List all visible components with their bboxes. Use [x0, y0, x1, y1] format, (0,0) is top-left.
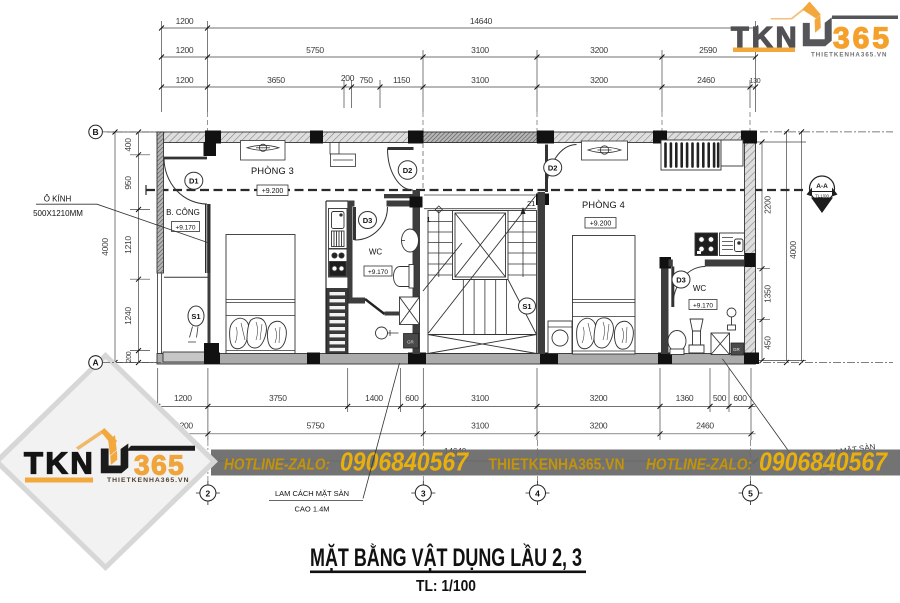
svg-text:D2: D2 [548, 164, 558, 173]
svg-text:GR: GR [733, 347, 741, 352]
svg-text:3: 3 [421, 488, 426, 498]
svg-text:0906840567: 0906840567 [340, 447, 469, 477]
svg-text:+9.200: +9.200 [262, 188, 284, 195]
svg-text:14640: 14640 [470, 16, 493, 26]
svg-text:1200: 1200 [176, 16, 194, 26]
svg-text:3100: 3100 [471, 75, 489, 85]
svg-text:WC: WC [369, 248, 383, 257]
svg-text:Ô KÍNH: Ô KÍNH [44, 195, 72, 204]
svg-text:D1: D1 [189, 177, 199, 186]
svg-text:MẶT BẰNG VẬT DỤNG LẦU 2, 3: MẶT BẰNG VẬT DỤNG LẦU 2, 3 [310, 542, 582, 572]
svg-text:1400: 1400 [365, 393, 383, 403]
svg-text:365: 365 [833, 22, 892, 55]
svg-text:+9.200: +9.200 [590, 221, 612, 228]
svg-text:PHÒNG 3: PHÒNG 3 [251, 166, 294, 177]
svg-text:1200: 1200 [174, 393, 192, 403]
svg-text:THIETKENHA365.VN: THIETKENHA365.VN [811, 52, 888, 59]
svg-text:THIETKENHA365.VN: THIETKENHA365.VN [107, 477, 189, 484]
svg-text:S1: S1 [191, 312, 200, 321]
svg-text:HOTLINE-ZALO:: HOTLINE-ZALO: [224, 457, 330, 474]
svg-text:PHÒNG 4: PHÒNG 4 [582, 200, 625, 211]
svg-text:D3: D3 [363, 216, 373, 225]
svg-text:+9.170: +9.170 [368, 269, 388, 276]
svg-text:200: 200 [126, 351, 133, 362]
svg-text:365: 365 [134, 450, 185, 481]
svg-text:D3: D3 [676, 276, 686, 285]
svg-text:1200: 1200 [176, 75, 194, 85]
svg-text:1150: 1150 [393, 75, 411, 85]
svg-text:A-A: A-A [816, 183, 828, 190]
svg-text:3750: 3750 [269, 393, 287, 403]
svg-text:+9.170: +9.170 [693, 302, 713, 309]
svg-text:5: 5 [748, 488, 753, 498]
svg-text:D2: D2 [403, 166, 413, 175]
svg-text:2460: 2460 [697, 75, 715, 85]
svg-text:2: 2 [206, 488, 211, 498]
svg-text:THIETKENHA365.VN: THIETKENHA365.VN [489, 457, 625, 474]
svg-text:4000: 4000 [100, 238, 110, 256]
svg-text:3650: 3650 [267, 75, 285, 85]
svg-text:400: 400 [123, 138, 133, 152]
svg-text:130: 130 [750, 78, 761, 85]
svg-text:1350: 1350 [763, 285, 773, 303]
svg-text:600: 600 [405, 393, 419, 403]
svg-text:4000: 4000 [788, 241, 798, 259]
svg-text:21: 21 [527, 199, 535, 208]
svg-text:1: 1 [427, 215, 431, 224]
svg-text:A: A [93, 358, 99, 368]
svg-text:3100: 3100 [471, 393, 489, 403]
svg-text:0906840567: 0906840567 [759, 447, 888, 477]
svg-text:B. CÔNG: B. CÔNG [166, 208, 200, 217]
svg-text:2590: 2590 [699, 45, 717, 55]
svg-text:2460: 2460 [696, 421, 714, 431]
svg-text:CAO 1.4M: CAO 1.4M [294, 505, 329, 514]
svg-text:4: 4 [535, 488, 540, 498]
svg-text:3200: 3200 [590, 75, 608, 85]
svg-text:1210: 1210 [123, 236, 133, 254]
svg-text:600: 600 [733, 393, 747, 403]
svg-text:HOTLINE-ZALO:: HOTLINE-ZALO: [646, 457, 752, 474]
svg-text:1200: 1200 [176, 45, 194, 55]
svg-text:1240: 1240 [123, 307, 133, 325]
svg-text:500X1210MM: 500X1210MM [33, 209, 83, 218]
svg-text:WC: WC [693, 284, 707, 293]
svg-text:B: B [93, 127, 99, 137]
svg-text:S1: S1 [522, 302, 531, 311]
svg-text:5750: 5750 [307, 421, 325, 431]
svg-text:TL: 1/100: TL: 1/100 [416, 578, 476, 595]
svg-text:3200: 3200 [590, 393, 608, 403]
svg-text:950: 950 [123, 176, 133, 190]
svg-text:1360: 1360 [676, 393, 694, 403]
svg-text:5750: 5750 [306, 45, 324, 55]
svg-text:3100: 3100 [471, 421, 489, 431]
svg-text:500: 500 [713, 393, 727, 403]
svg-text:3200: 3200 [590, 421, 608, 431]
svg-text:TKN: TKN [24, 446, 95, 481]
svg-text:450: 450 [763, 336, 773, 350]
svg-text:750: 750 [359, 75, 373, 85]
svg-text:2200: 2200 [763, 196, 773, 214]
svg-text:200: 200 [341, 73, 355, 83]
svg-text:LAM CÁCH MẶT SÀN: LAM CÁCH MẶT SÀN [275, 489, 349, 498]
svg-text:+9.170: +9.170 [175, 224, 195, 231]
svg-text:GR: GR [407, 340, 415, 345]
svg-text:3100: 3100 [471, 45, 489, 55]
svg-text:3200: 3200 [590, 45, 608, 55]
